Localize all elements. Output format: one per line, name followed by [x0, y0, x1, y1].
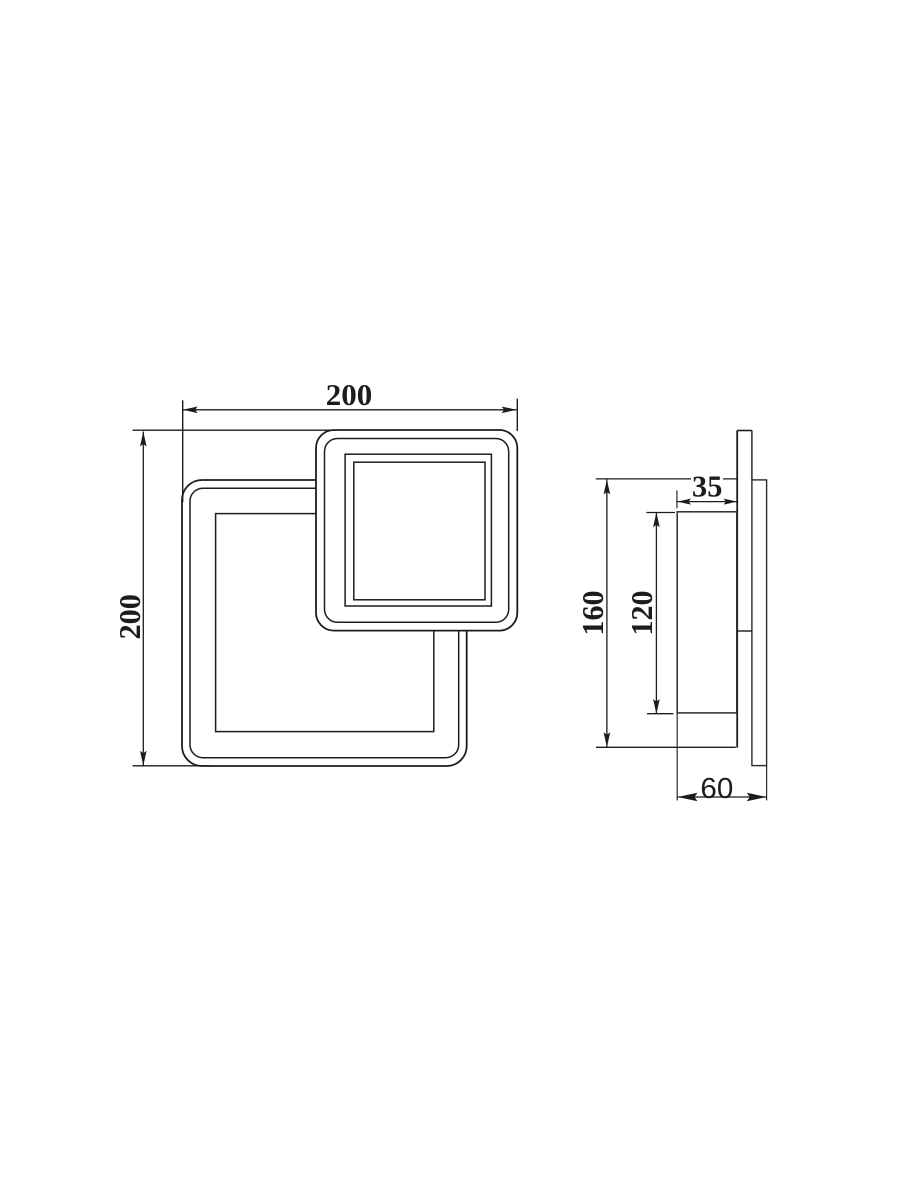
svg-text:120: 120 — [624, 591, 659, 636]
svg-text:200: 200 — [112, 594, 147, 640]
svg-text:160: 160 — [575, 591, 610, 636]
svg-text:60: 60 — [700, 773, 733, 805]
svg-text:35: 35 — [692, 469, 722, 504]
svg-text:200: 200 — [326, 377, 373, 412]
